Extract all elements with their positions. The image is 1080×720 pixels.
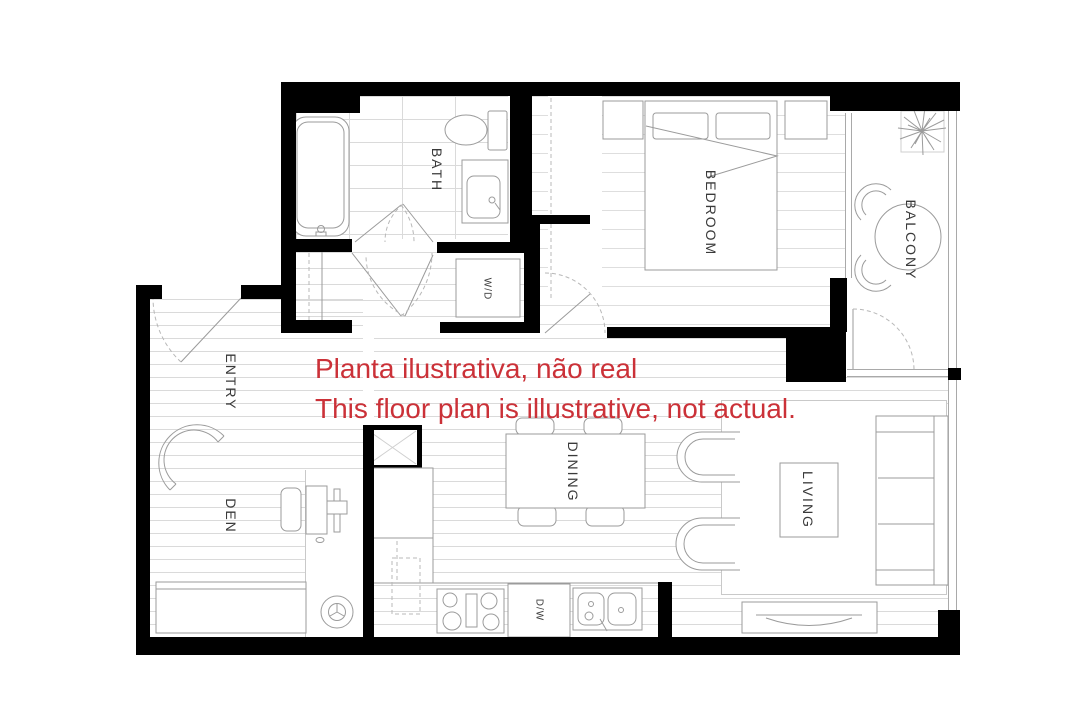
wall-den-kitchen (363, 425, 374, 640)
label-den: DEN (223, 498, 239, 534)
wall-entry-top-right (241, 285, 288, 299)
label-bedroom: BEDROOM (703, 170, 719, 256)
balcony-bottom-window (847, 369, 948, 377)
disclaimer-line-pt: Planta ilustrativa, não real (315, 349, 796, 389)
label-living: LIVING (800, 471, 816, 529)
wall-left (136, 285, 150, 655)
wall-hall-bottom (281, 320, 352, 333)
den-side-strip (305, 470, 364, 637)
balcony-chair-top (855, 184, 891, 220)
wall-bottom-right-block (938, 610, 960, 655)
balcony-lower-patch (846, 338, 948, 369)
bedroom-closet-floor (548, 96, 602, 302)
label-bath: BATH (429, 148, 445, 192)
label-dining: DINING (565, 442, 581, 503)
label-balcony: BALCONY (903, 200, 919, 281)
wall-kitchen-living-stub (658, 582, 672, 639)
wall-wd-bottom (440, 322, 540, 333)
wall-top-right-block (830, 82, 960, 111)
label-entry: ENTRY (223, 353, 239, 410)
bath-floor (296, 96, 508, 239)
disclaimer-text: Planta ilustrativa, não real This floor … (315, 349, 796, 429)
balcony-chair-bottom (855, 255, 891, 291)
floor-plan: BATH BEDROOM BALCONY ENTRY DEN DINING LI… (0, 0, 1080, 720)
label-dishwasher: D/W (534, 599, 545, 621)
wall-bath-bottom (281, 239, 352, 252)
wall-balcony-block-small (830, 278, 847, 332)
balcony-plant (898, 107, 946, 155)
wall-balcony-post (948, 368, 961, 380)
wall-wd-right (524, 215, 540, 333)
living-rug (721, 400, 947, 595)
label-washer-dryer: W/D (482, 278, 493, 300)
right-window-wall (948, 111, 957, 612)
wall-bottom (136, 637, 960, 655)
wall-wd-top (437, 242, 526, 253)
wall-top (296, 82, 830, 96)
disclaimer-line-en: This floor plan is illustrative, not act… (315, 389, 796, 429)
bedroom-balcony-window (845, 113, 852, 278)
